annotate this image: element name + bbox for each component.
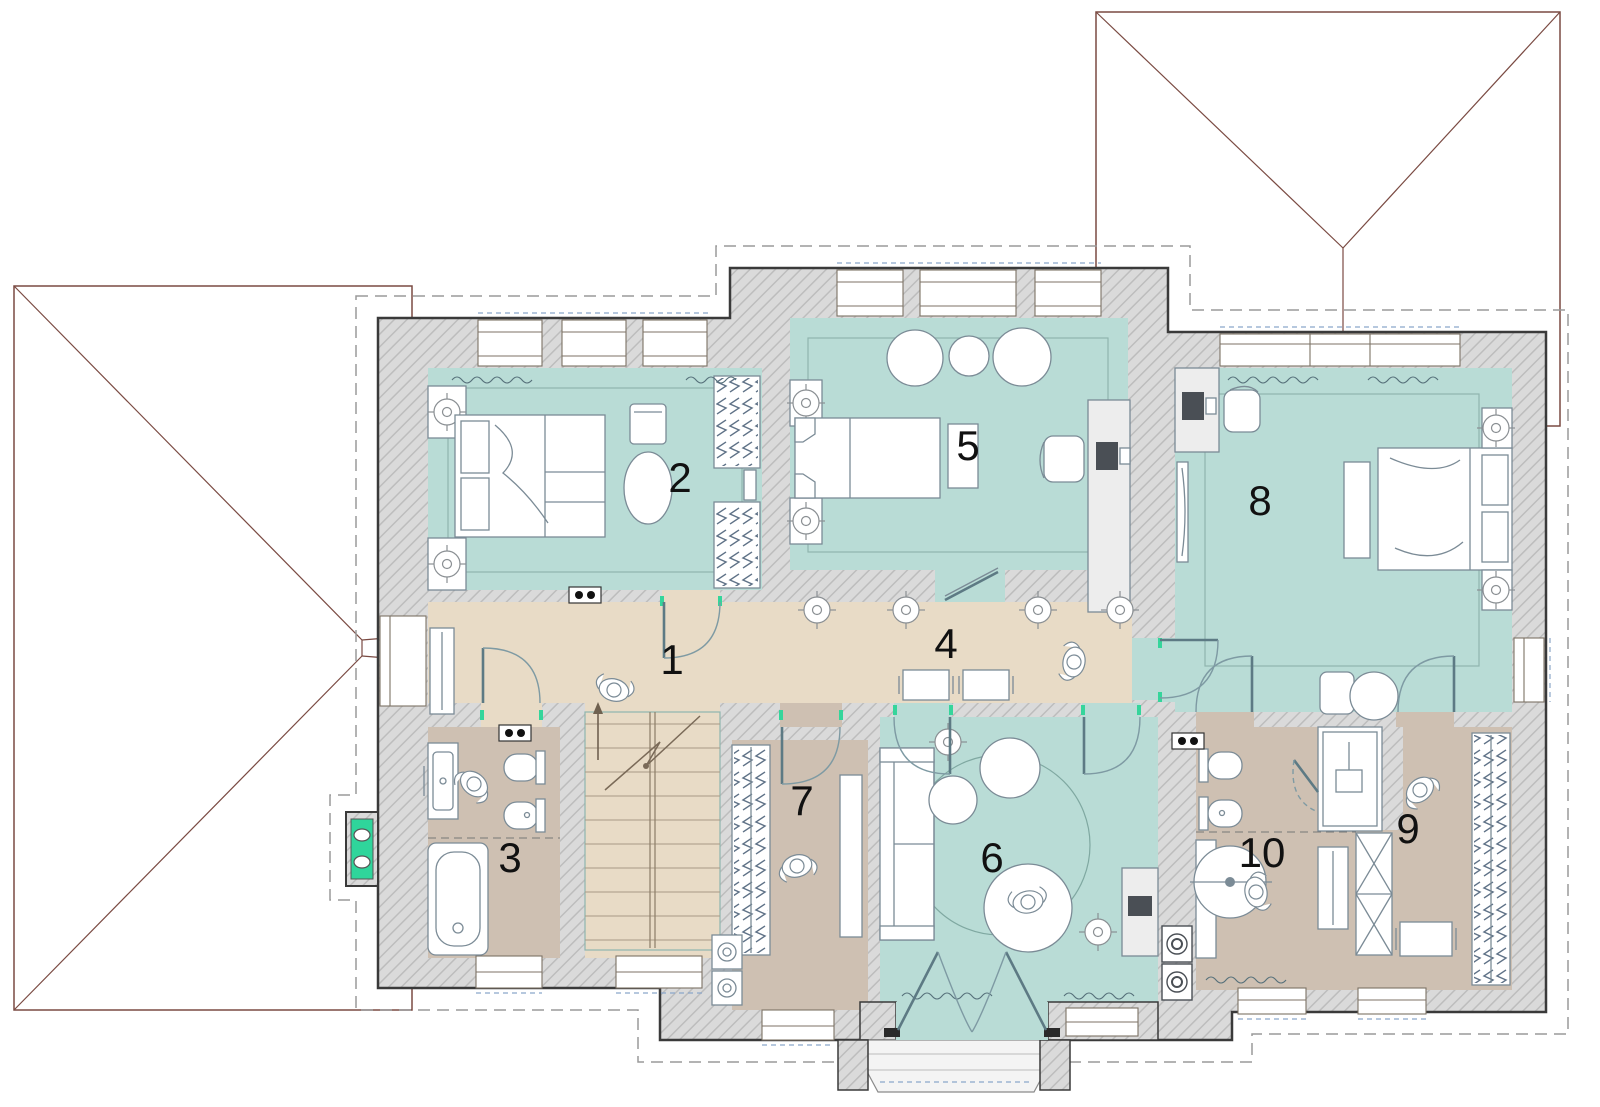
- chimney-vent: [346, 812, 378, 886]
- clothes-rail-icon: [732, 745, 770, 955]
- window: [1220, 334, 1460, 366]
- room-1-floor: [428, 602, 1132, 703]
- armchair-icon: [630, 404, 666, 444]
- room-2-label: 2: [668, 454, 691, 501]
- round-table: [1350, 672, 1398, 720]
- room-4-label: 4: [934, 620, 957, 667]
- sofa-icon: [880, 748, 934, 940]
- pouf-icon: [949, 336, 989, 376]
- room-3-label: 3: [498, 834, 521, 881]
- bidet-icon: [1199, 797, 1242, 830]
- desk-icon: [1122, 868, 1158, 956]
- room-1-label: 1: [660, 636, 683, 683]
- bench-icon: [1396, 922, 1456, 956]
- floor-plan-canvas: 1 2 3 4 5 6 7 8 9 10: [0, 0, 1600, 1107]
- window: [478, 320, 542, 366]
- window: [643, 320, 707, 366]
- window: [476, 956, 542, 988]
- window: [920, 270, 1016, 316]
- floor-plan-drawing: 1 2 3 4 5 6 7 8 9 10: [0, 0, 1600, 1107]
- shelf-icon: [840, 775, 862, 937]
- bench-icon: [1344, 462, 1370, 558]
- desk-chair-icon: [1224, 386, 1260, 432]
- toilet-icon: [504, 751, 545, 784]
- bed-icon: [1378, 448, 1512, 570]
- tea-chair-icon: [1320, 672, 1398, 720]
- room-5-label: 5: [956, 422, 979, 469]
- room-8-label: 8: [1248, 477, 1271, 524]
- washer-icon: [1162, 926, 1192, 962]
- window: [1238, 988, 1306, 1014]
- balcony: [838, 1040, 1070, 1092]
- bed-icon: [455, 415, 605, 537]
- sink-icon: [424, 743, 458, 819]
- pouf-icon: [929, 776, 977, 824]
- pouf-icon: [887, 330, 943, 386]
- pouf-icon: [980, 738, 1040, 798]
- window: [380, 616, 426, 706]
- bidet-icon: [504, 799, 545, 832]
- window: [1514, 638, 1544, 702]
- washer-icon: [1162, 964, 1192, 1000]
- stool-icon: [899, 670, 953, 700]
- window: [762, 1010, 834, 1040]
- switch-icon: [569, 587, 601, 603]
- window: [1066, 1008, 1138, 1036]
- room-7-label: 7: [790, 777, 813, 824]
- mirror-icon: [744, 470, 756, 500]
- toilet-icon: [1199, 749, 1242, 782]
- window: [562, 320, 626, 366]
- bathtub-icon: [428, 843, 488, 955]
- stairwell-floor: [585, 703, 720, 958]
- bed-icon: [795, 418, 940, 498]
- window: [837, 270, 903, 316]
- room-6-label: 6: [980, 834, 1003, 881]
- window: [1035, 270, 1101, 316]
- rug-icon: [624, 452, 672, 524]
- stool-icon: [959, 670, 1013, 700]
- clothes-rail-icon: [1472, 733, 1510, 985]
- pouf-icon: [993, 328, 1051, 386]
- switch-icon: [1172, 733, 1204, 749]
- cabinet-icon: [1356, 833, 1392, 955]
- desk-chair-icon: [1040, 436, 1084, 482]
- roof-left-outline: [14, 286, 412, 1010]
- mirror-icon: [1177, 462, 1188, 562]
- room-10-label: 10: [1239, 829, 1286, 876]
- room-9-label: 9: [1396, 805, 1419, 852]
- window: [616, 956, 702, 988]
- desk-icon: [1088, 400, 1130, 612]
- window: [1358, 988, 1426, 1014]
- switch-icon: [499, 725, 531, 741]
- desk-icon: [1175, 368, 1219, 452]
- roof-left: [14, 286, 412, 1010]
